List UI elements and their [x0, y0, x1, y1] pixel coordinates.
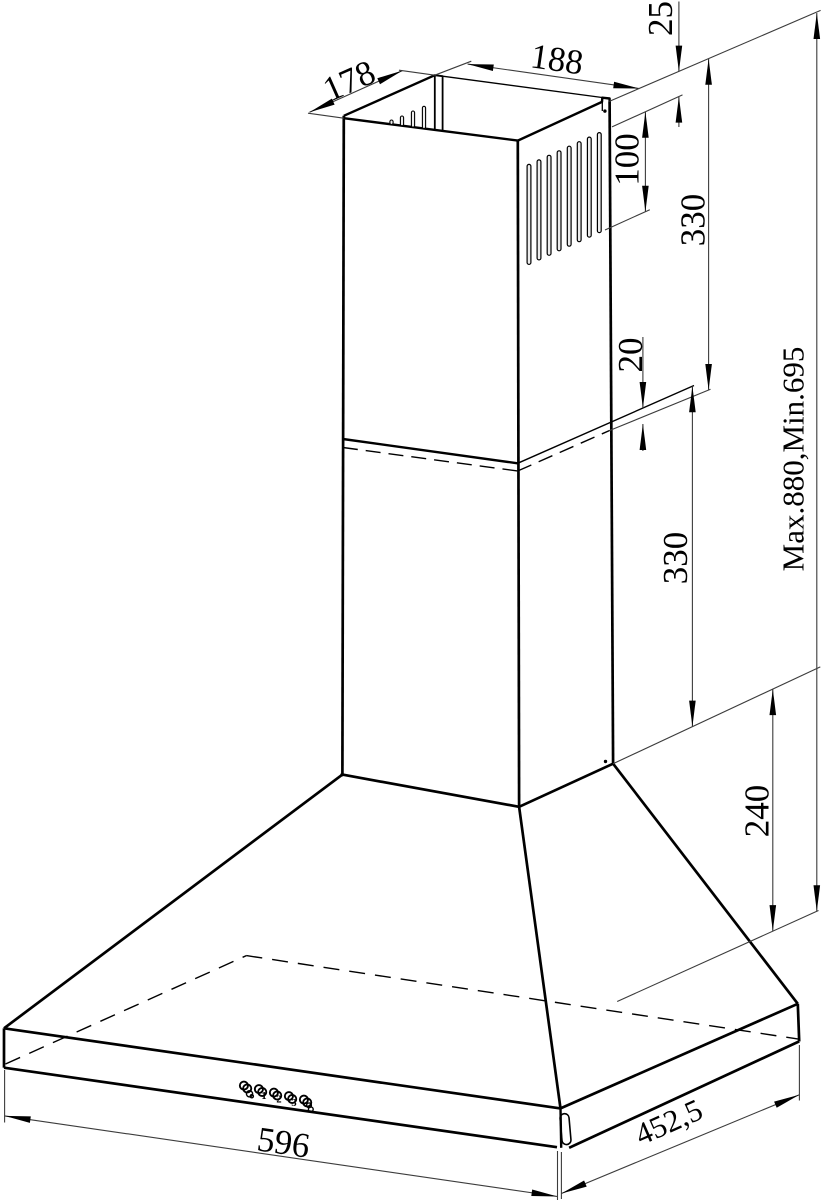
svg-text:188: 188 [528, 36, 586, 82]
svg-text:1: 1 [261, 1091, 266, 1102]
svg-text:3: 3 [291, 1098, 296, 1109]
svg-text:25: 25 [641, 1, 680, 36]
svg-text:20: 20 [611, 338, 650, 373]
svg-text:240: 240 [738, 785, 777, 838]
svg-text:330: 330 [656, 532, 695, 585]
svg-text:Max.880,Min.695: Max.880,Min.695 [776, 347, 811, 572]
svg-text:2: 2 [276, 1095, 281, 1106]
svg-text:330: 330 [674, 194, 713, 247]
svg-text:596: 596 [255, 1119, 313, 1165]
svg-text:100: 100 [608, 133, 647, 186]
